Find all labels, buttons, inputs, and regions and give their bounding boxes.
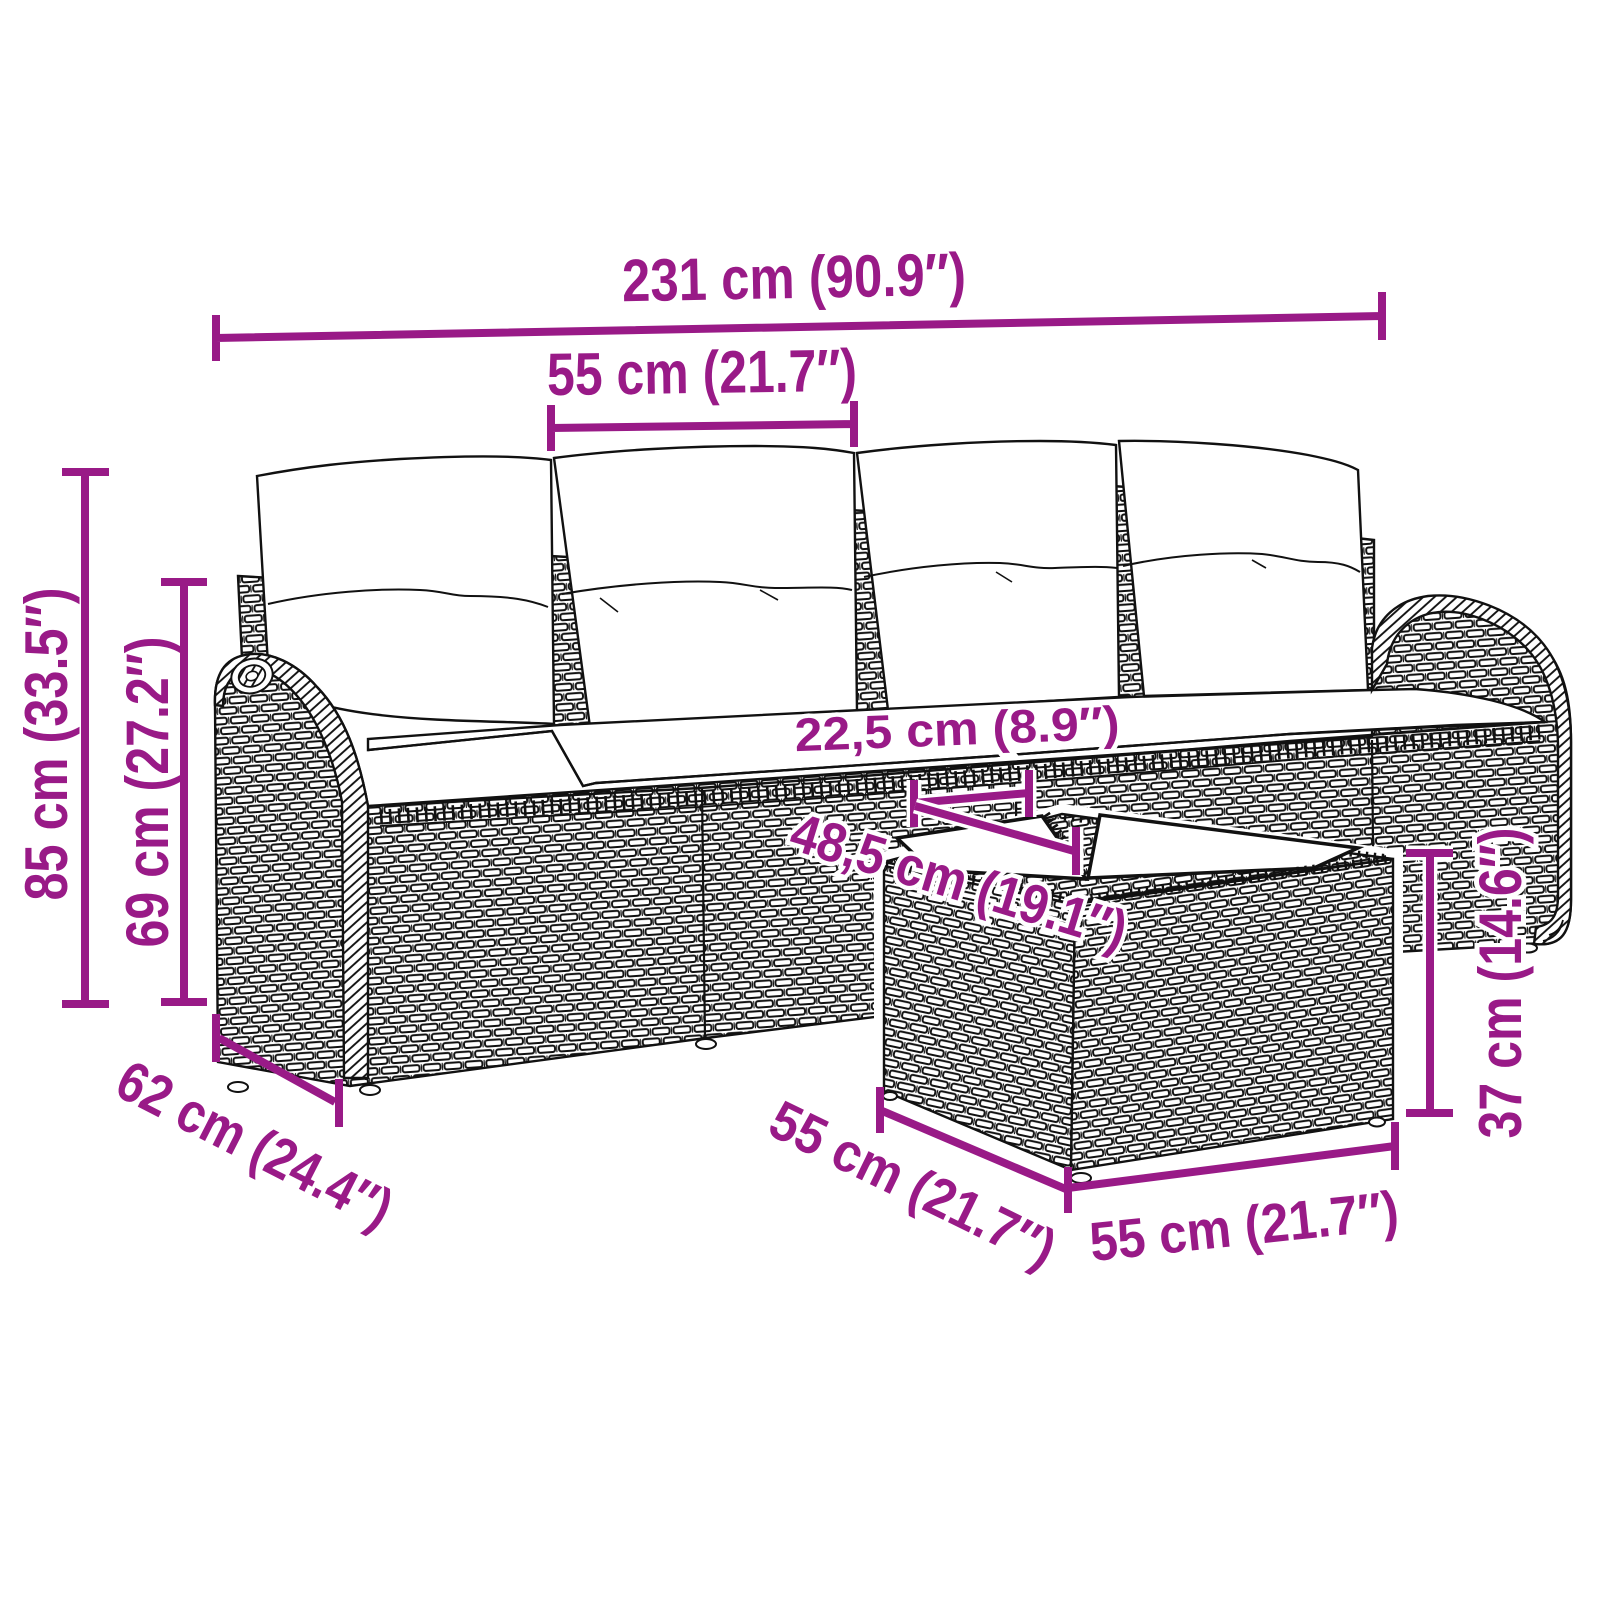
- svg-text:69 cm (27.2″): 69 cm (27.2″): [114, 637, 181, 948]
- svg-text:55 cm (21.7″): 55 cm (21.7″): [1087, 1179, 1402, 1273]
- svg-text:55 cm (21.7″): 55 cm (21.7″): [547, 337, 858, 408]
- svg-text:85 cm (33.5″): 85 cm (33.5″): [13, 588, 80, 901]
- svg-text:231 cm (90.9″): 231 cm (90.9″): [621, 241, 966, 315]
- svg-text:37 cm (14.6″): 37 cm (14.6″): [1467, 828, 1534, 1139]
